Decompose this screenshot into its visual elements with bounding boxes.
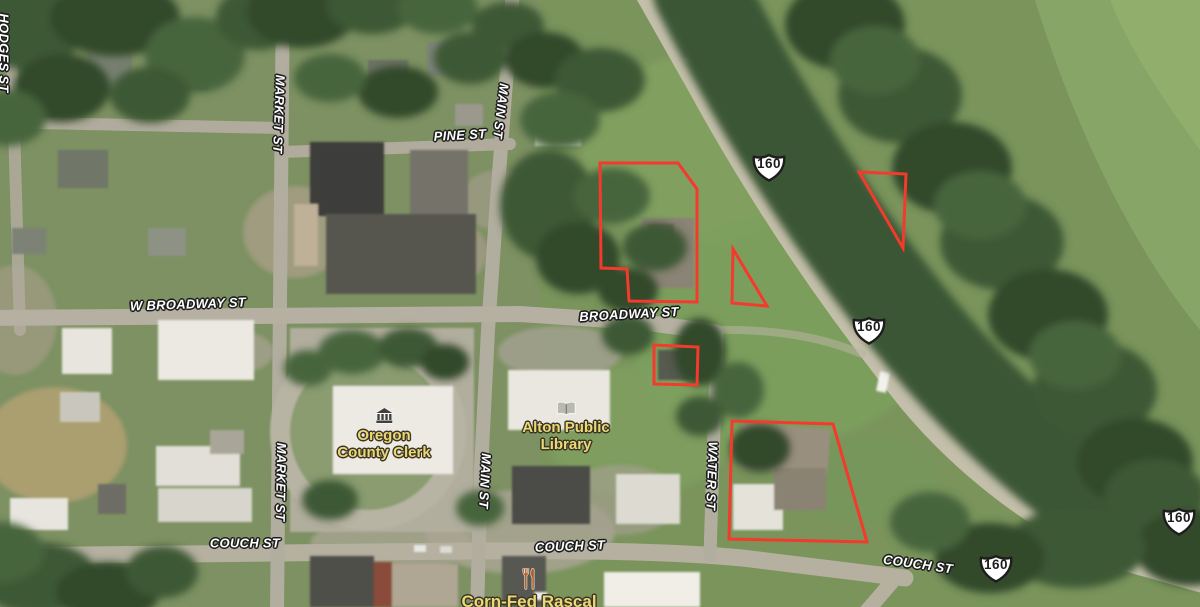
street-label: WATER ST	[703, 441, 720, 510]
poi-label-text: County Clerk	[337, 444, 430, 461]
us-route-shield: 160	[750, 152, 788, 183]
street-label: MAIN ST	[476, 453, 494, 509]
poi-label-text: Corn-Fed Rascal	[461, 592, 596, 607]
poi-label-text: Alton Public	[522, 419, 610, 436]
route-number: 160	[977, 557, 1015, 572]
street-label: PINE ST	[433, 126, 486, 144]
street-label: MARKET ST	[273, 443, 289, 522]
street-label: BROADWAY ST	[579, 304, 679, 324]
poi-label-text: Library	[522, 436, 610, 453]
poi-label[interactable]: OregonCounty Clerk	[337, 407, 430, 461]
us-route-shield: 160	[977, 553, 1015, 584]
route-number: 160	[850, 319, 888, 334]
us-route-shield: 160	[850, 315, 888, 346]
street-label: MAIN ST	[490, 83, 512, 140]
poi-label[interactable]: Corn-Fed Rascal	[461, 568, 596, 607]
us-route-shield: 160	[1160, 506, 1198, 537]
restaurant-icon	[521, 568, 537, 590]
poi-label[interactable]: Alton PublicLibrary	[522, 401, 610, 453]
book-icon	[555, 401, 577, 417]
street-label: COUCH ST	[882, 552, 954, 577]
street-label: COUCH ST	[210, 536, 280, 551]
route-number: 160	[1160, 510, 1198, 525]
map-label-layer: HODGES STMARKET STMAIN STPINE STW BROADW…	[0, 0, 1200, 607]
satellite-map-viewport[interactable]: HODGES STMARKET STMAIN STPINE STW BROADW…	[0, 0, 1200, 607]
poi-label-text: Oregon	[337, 427, 430, 444]
street-label: HODGES ST	[0, 13, 12, 92]
courthouse-icon	[374, 407, 394, 425]
route-number: 160	[750, 156, 788, 171]
street-label: COUCH ST	[535, 537, 606, 554]
street-label: W BROADWAY ST	[130, 294, 247, 313]
street-label: MARKET ST	[270, 74, 288, 153]
